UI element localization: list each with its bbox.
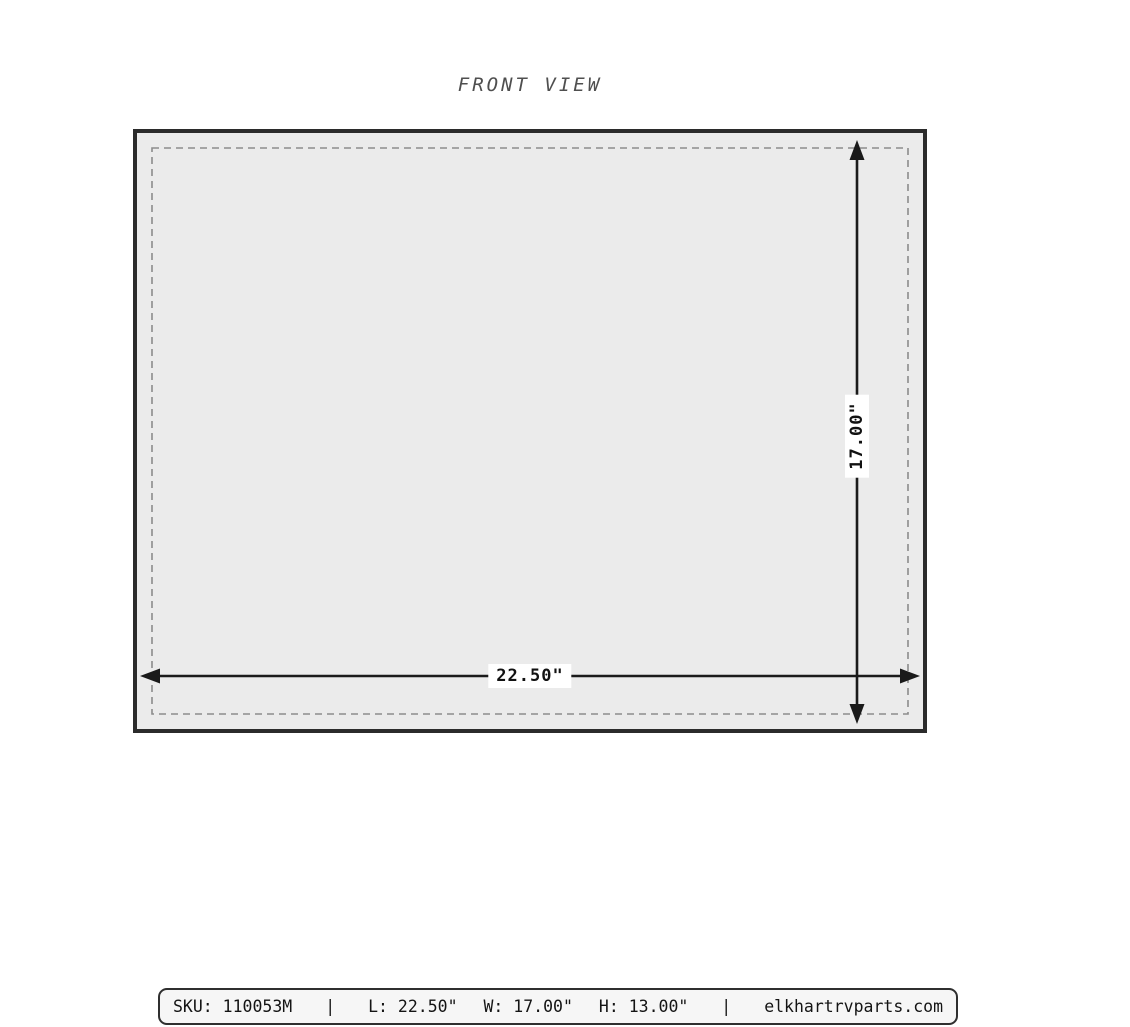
height-text: H: 13.00" <box>599 997 688 1016</box>
sku-text: SKU: 110053M <box>173 997 292 1016</box>
dimensions-group: L: 22.50" W: 17.00" H: 13.00" <box>368 997 688 1016</box>
arrow-down-icon <box>850 704 865 724</box>
dimension-drawing <box>137 133 923 729</box>
view-title: FRONT VIEW <box>133 74 927 96</box>
separator: | <box>721 997 731 1016</box>
width-dimension-label: 22.50" <box>488 664 571 688</box>
width-text: W: 17.00" <box>484 997 573 1016</box>
arrow-up-icon <box>850 140 865 160</box>
arrow-right-icon <box>900 669 920 684</box>
product-outline: 22.50" 17.00" <box>133 129 927 733</box>
height-dimension-label: 17.00" <box>845 394 869 477</box>
length-text: L: 22.50" <box>368 997 457 1016</box>
website-text: elkhartrvparts.com <box>764 997 943 1016</box>
separator: | <box>325 997 335 1016</box>
info-bar: SKU: 110053M | L: 22.50" W: 17.00" H: 13… <box>158 988 958 1025</box>
arrow-left-icon <box>140 669 160 684</box>
dashed-inner-outline <box>152 148 908 714</box>
